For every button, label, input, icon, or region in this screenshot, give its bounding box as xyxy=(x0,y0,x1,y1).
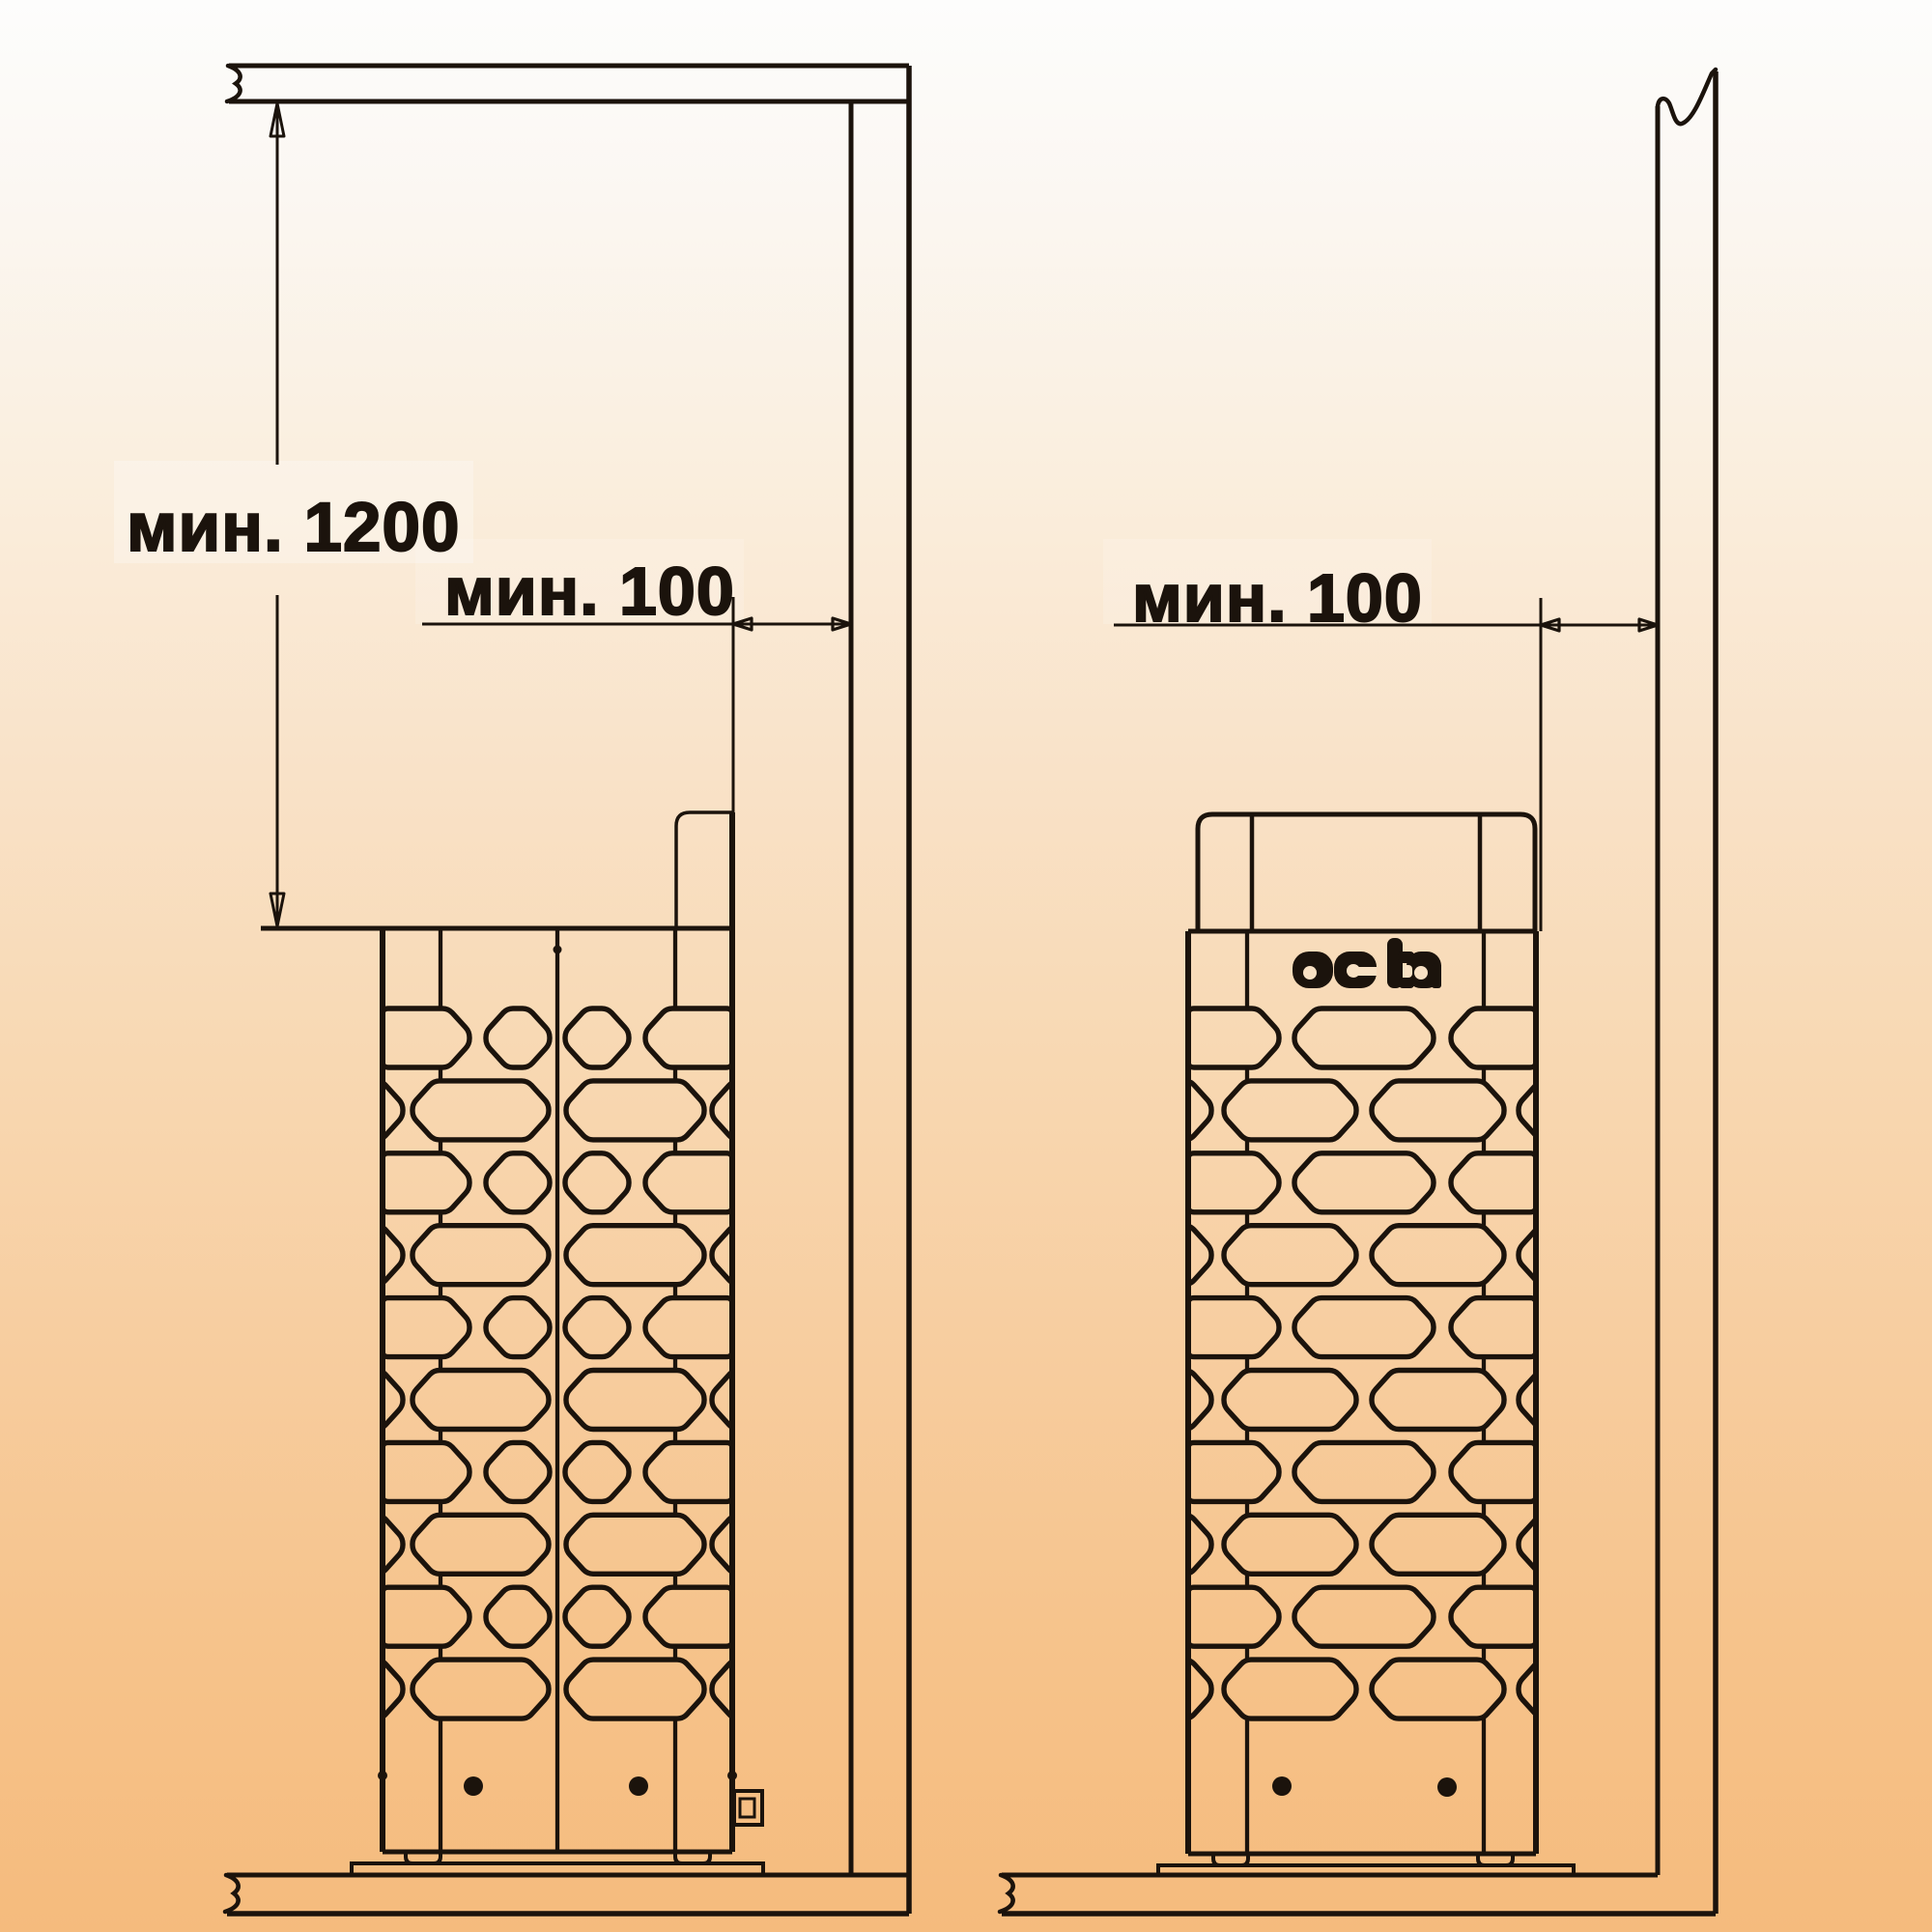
svg-text:мин. 1200: мин. 1200 xyxy=(127,490,460,566)
svg-text:мин. 100: мин. 100 xyxy=(1132,560,1423,636)
svg-text:мин. 100: мин. 100 xyxy=(444,554,735,629)
